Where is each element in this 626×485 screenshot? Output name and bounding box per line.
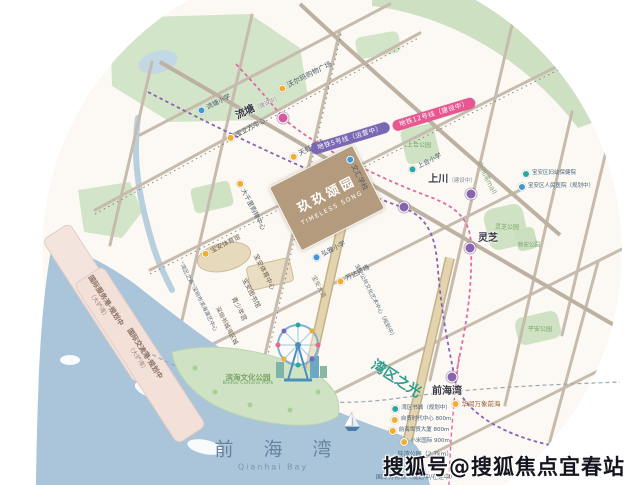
park-label: 平安公园	[528, 327, 552, 333]
poi-dot-icon	[288, 151, 299, 162]
metro-station-icon	[447, 372, 458, 383]
poi-label: 湾区书城（规划中）	[391, 405, 451, 413]
poi-label: 宝安体育中心	[252, 253, 275, 291]
poi-label: 流塘小学	[196, 92, 232, 115]
poi-label: “湾区之声”深圳市滨海演艺中心	[177, 261, 217, 332]
park-label: 上合公园	[407, 143, 431, 149]
metro-station-icon	[278, 113, 289, 124]
project-block: 玖玖颂园 TIMELESS SONG	[269, 145, 385, 252]
metro-station-icon	[466, 189, 477, 200]
poi-label: 中洲湾mall	[475, 160, 498, 195]
watermark: 搜狐号@搜狐焦点宜春站	[383, 451, 625, 481]
bay-name-en: Qianhai Bay	[202, 464, 343, 472]
port-strip-label: 国际交流港·规划中（大铲湾）	[118, 327, 164, 385]
poi-label: 大千里购物中心	[235, 178, 267, 231]
poi-label: 自贸时代中心 800m	[391, 416, 452, 424]
map-labels-layer: 玖玖颂园 TIMELESS SONG 前 海 湾 Qianhai Bay 沃尔玛…	[0, 0, 626, 485]
poi-dot-icon	[311, 252, 322, 263]
poi-dot-icon	[407, 164, 418, 175]
poi-label: 青少年宫	[230, 296, 248, 322]
poi-label: 华润万象前海	[452, 400, 501, 408]
poi-dot-icon	[196, 105, 207, 116]
park-label: 灵芝公园	[495, 225, 519, 231]
poi-dot-icon	[277, 83, 288, 94]
bay-name-label: 前 海 湾 Qianhai Bay	[202, 441, 343, 472]
poi-label: 深圳书城湾区城	[214, 306, 238, 346]
poi-label: 上合小学	[407, 151, 443, 174]
metro-station-icon	[399, 202, 410, 213]
area-map-image: 玖玖颂园 TIMELESS SONG 前 海 湾 Qianhai Bay 沃尔玛…	[0, 0, 626, 485]
poi-label: 沃尔玛购物广场	[277, 60, 333, 94]
poi-dot-icon	[522, 170, 530, 178]
poi-dot-icon	[225, 132, 236, 143]
poi-dot-icon	[335, 276, 346, 287]
poi-label: 宝安区人民医院（规划中）	[518, 183, 594, 191]
poi-label: 前海世贸大厦 800m	[389, 427, 450, 435]
metro-station-label: 上川（建设中）	[428, 175, 476, 185]
poi-dot-icon	[400, 438, 408, 446]
metro-station-label: 流塘（建设中）	[234, 92, 281, 121]
poi-label: 宝立方中心	[225, 117, 266, 143]
poi-label: 小米国际 900m	[400, 438, 450, 446]
poi-label: 宝安大道	[310, 275, 326, 299]
poi-label: 宝安图书馆	[241, 277, 262, 309]
poi-label: 宝安体育馆	[200, 233, 241, 259]
poi-dot-icon	[200, 248, 211, 259]
metro-station-label: 前海湾	[432, 387, 462, 397]
metro-station-icon	[465, 243, 476, 254]
park-label: 新安公园	[518, 243, 540, 249]
metro-station-label: 灵芝	[478, 234, 498, 244]
port-strip-label: 国际服务港·规划中（大铲湾）	[79, 274, 125, 332]
poi-dot-icon	[391, 416, 399, 424]
poi-label: 宝安公共文化艺术中心（规划中）	[353, 264, 395, 340]
poi-label: 湾区之光	[369, 358, 424, 400]
poi-dot-icon	[518, 183, 526, 191]
poi-dot-icon	[452, 400, 460, 408]
metro-line-banner: 地铁12号线（建设中）	[391, 96, 477, 131]
bay-name-cn: 前 海 湾	[202, 441, 343, 460]
poi-dot-icon	[389, 427, 397, 435]
poi-label: 宝安区妇幼保健院	[522, 170, 576, 178]
poi-dot-icon	[391, 405, 399, 413]
park-label: 滨海文化公园Binhai Cultural Park	[223, 374, 274, 386]
